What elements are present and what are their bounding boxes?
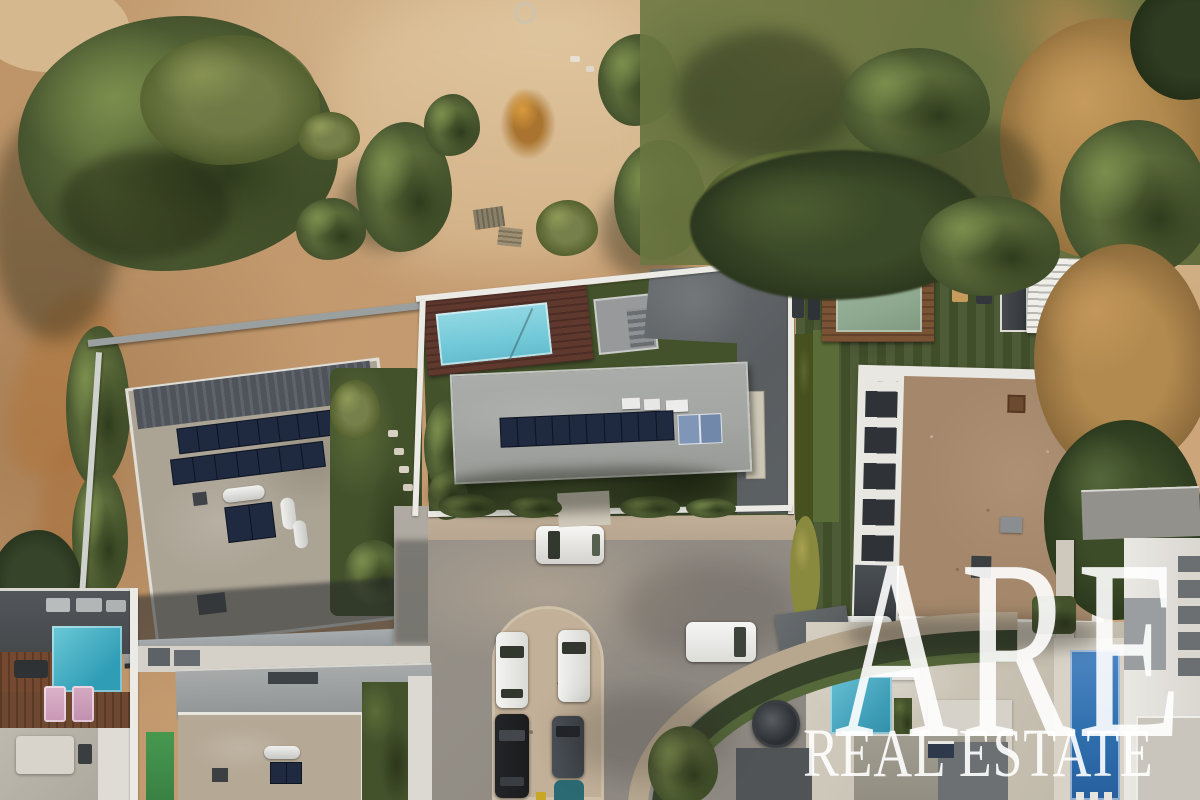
deck-table [14,660,48,678]
bm-lawn [362,682,408,800]
bm-kitchen-block [174,650,200,666]
van-windshield [734,627,746,657]
rust-rock-patch [500,88,556,160]
car-windshield [562,642,586,654]
roof-equipment [971,556,992,579]
bl-deck [0,692,134,730]
litter-speck [586,66,594,72]
stepping-stone [394,448,404,455]
scrub-shadow [676,30,856,160]
bm-white-wall [408,676,432,800]
bl-separator-wall [130,588,138,800]
bm-skylight [268,672,318,684]
van-rear-window [592,534,600,556]
teal-car [554,780,584,800]
edge-building-window [1178,556,1200,676]
lower-terrace-glass [854,565,897,622]
shrub-shadow-core [60,150,230,260]
cast-shadow [848,616,1098,652]
bm-heater-panels [270,762,302,784]
white-van [536,526,604,564]
bl-pool [52,626,122,692]
car-rear-window [501,689,523,698]
car-windshield [499,730,525,741]
pool-step [1076,792,1084,800]
car-windshield [500,646,524,658]
litter-speck [570,56,580,62]
lawn-bright-strip [813,330,839,522]
bush [296,198,366,260]
right-driveway [1081,486,1200,540]
cast-shadow [560,690,730,780]
bl-white-structure [98,728,134,800]
bm-heater-tank [264,746,300,759]
roof-ac-unit [644,399,660,411]
edge-building-recess [1124,598,1166,670]
stepping-stone [399,466,409,473]
roof-hatch [1007,395,1025,413]
white-van [686,622,756,662]
bm-kitchen-block [148,648,170,666]
blue-pool [1070,650,1120,800]
grill [78,744,92,764]
bush [536,200,598,256]
hot-tub [752,700,800,748]
patio-table-large [16,736,74,774]
stepping-stone [388,430,398,437]
white-car [558,630,590,702]
tree-canopy-lobe [920,196,1060,296]
pallet-debris [497,227,523,247]
white-car [496,632,528,708]
bush [298,112,360,160]
terrace-sofa [106,600,126,612]
hedge-strip [795,334,813,520]
bm-roof-box [212,768,228,782]
edge-building-roof [1136,716,1200,800]
solar-water-heater-panels [224,502,276,544]
solar-thermal-panels [677,413,722,445]
road-marking [536,792,546,800]
cane-clump [840,48,990,158]
roof-ac-unit [622,398,640,410]
roof-vent [192,491,207,506]
car-rear-window [500,777,524,786]
black-car [495,714,529,798]
shrub-highlight [140,35,320,165]
pink-lounger [72,686,94,722]
circle-ring-debris [514,2,536,24]
terrace-sofa [46,598,70,612]
pool-step [1090,792,1098,800]
pool-step [1104,792,1112,800]
terrace-sofa [76,598,102,612]
skylight-strips [861,381,898,562]
bush [424,94,480,156]
bm-astroturf-strip [146,732,174,800]
inner-roof-dark [736,748,812,800]
van-windshield [548,531,560,559]
boundary-wall-top [88,302,423,347]
aerial-photo-canvas: ARE REAL ESTATE [0,0,1200,800]
pink-lounger [44,686,66,722]
garden-bush [330,380,380,440]
stepping-stone [403,484,413,491]
roof-vent [1000,517,1022,534]
